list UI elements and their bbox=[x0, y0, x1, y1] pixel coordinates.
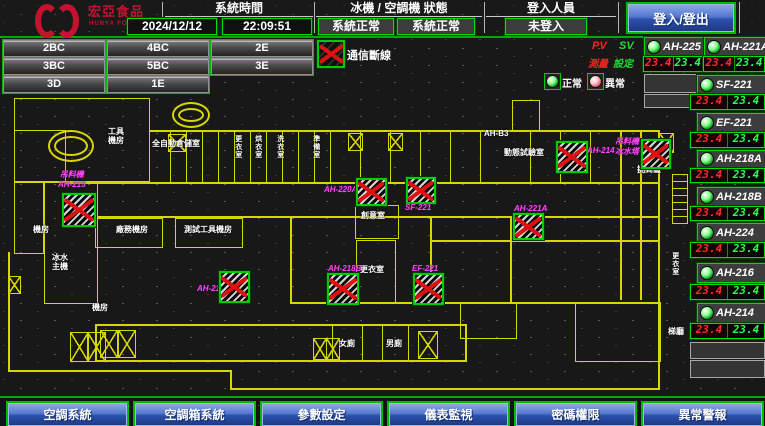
offline-unit-ah-214-plan[interactable] bbox=[556, 141, 588, 173]
stair-x-box bbox=[348, 133, 363, 151]
sv-value: 23.4 bbox=[728, 169, 764, 182]
wall-segment bbox=[330, 132, 331, 182]
unit-name: AH-225 bbox=[663, 41, 701, 53]
floor-button-3d[interactable]: 3D bbox=[3, 76, 105, 93]
bottom-nav-bar: 空調系統 空調箱系統 參數設定 儀表監視 密碼權限 異常警報 bbox=[0, 396, 765, 426]
normal-legend-lamp bbox=[544, 73, 561, 90]
unit-name: AH-218A bbox=[716, 153, 762, 165]
wall-segment bbox=[465, 324, 467, 362]
comm-fail-legend-label: 通信斷線 bbox=[347, 47, 391, 63]
stair-x-box bbox=[118, 330, 136, 358]
room-label: 工具 機房 bbox=[108, 128, 124, 146]
pv-value: 23.4 bbox=[691, 207, 728, 220]
wall-segment bbox=[512, 100, 540, 132]
empty-panel bbox=[690, 342, 765, 359]
room-label: 更衣室 bbox=[234, 135, 242, 159]
wall-segment bbox=[460, 302, 517, 339]
unit-values-ah-218a: 23.423.4 bbox=[690, 168, 765, 183]
room-label: 創意室 bbox=[361, 212, 385, 221]
wall-segment bbox=[230, 388, 660, 390]
room-label: 機房 bbox=[33, 226, 49, 235]
stair-x-box bbox=[326, 338, 340, 360]
sv-header: SV bbox=[619, 40, 634, 52]
unit-values-sf-221: 23.423.4 bbox=[690, 94, 765, 110]
stair-x-box bbox=[8, 276, 21, 294]
unit-name: AH-214 bbox=[716, 307, 754, 319]
sv-value: 23.4 bbox=[728, 95, 764, 109]
offline-unit-ah-215[interactable] bbox=[62, 193, 96, 227]
room-label: 更衣室 bbox=[360, 266, 384, 275]
unit-name: AH-218B bbox=[716, 191, 762, 203]
nav-button-alarm[interactable]: 異常警報 bbox=[643, 403, 762, 426]
offline-unit-ah-218b-plan[interactable] bbox=[327, 273, 359, 305]
pv-value: 23.4 bbox=[704, 57, 735, 71]
offline-unit-label: 冰水塔 bbox=[615, 147, 639, 156]
offline-unit-ah-218[interactable] bbox=[219, 271, 250, 303]
system-time-label: 系統時間 bbox=[165, 1, 313, 17]
wall-segment bbox=[575, 302, 661, 362]
unit-values-ah-214: 23.423.4 bbox=[690, 323, 765, 339]
normal-legend-label: 正常 bbox=[562, 75, 582, 90]
unit-name: EF-221 bbox=[716, 117, 752, 129]
sv-value: 23.4 bbox=[728, 133, 764, 147]
room-label: 冰水 主機 bbox=[52, 254, 68, 272]
offline-unit-ef-221-plan[interactable] bbox=[413, 273, 444, 305]
room-label: 烘衣室 bbox=[254, 135, 262, 159]
room-label: 女廁 bbox=[339, 340, 355, 349]
unit-name: SF-221 bbox=[716, 79, 752, 91]
offline-unit-label: AH-214 bbox=[587, 146, 615, 156]
room-label: 準備室 bbox=[312, 135, 320, 159]
wall-segment bbox=[480, 132, 481, 182]
machine-status-label: 冰機 / 空調機 狀態 bbox=[316, 1, 482, 17]
unit-panel-ah-214[interactable]: AH-214 bbox=[697, 303, 765, 323]
unit-values-ef-221: 23.423.4 bbox=[690, 132, 765, 148]
nav-button-password-authority[interactable]: 密碼權限 bbox=[516, 403, 635, 426]
stair-x-box bbox=[418, 331, 438, 359]
floor-button-2bc[interactable]: 2BC bbox=[3, 40, 105, 57]
floor-button-2e[interactable]: 2E bbox=[211, 40, 313, 57]
offline-unit-ah-221a-plan[interactable] bbox=[513, 213, 544, 240]
pv-value: 23.4 bbox=[691, 243, 728, 257]
room-label: 梯廳 bbox=[668, 328, 684, 337]
nav-button-ac-system[interactable]: 空調系統 bbox=[8, 403, 127, 426]
login-logout-button[interactable]: 登入/登出 bbox=[628, 4, 734, 32]
system-date-value: 2024/12/12 bbox=[127, 18, 217, 35]
sv-value: 23.4 bbox=[735, 57, 765, 71]
floor-button-1e[interactable]: 1E bbox=[107, 76, 209, 93]
offline-unit-hoist[interactable] bbox=[641, 139, 671, 169]
pv-value: 23.4 bbox=[691, 133, 728, 147]
login-status-value: 未登入 bbox=[505, 18, 587, 35]
stair-x-box bbox=[87, 332, 106, 362]
brand-logo-icon bbox=[55, 4, 79, 38]
unit-values-ah-224: 23.423.4 bbox=[690, 242, 765, 258]
offline-unit-label: SF-221 bbox=[405, 203, 431, 213]
unit-panel-sf-221[interactable]: SF-221 bbox=[697, 75, 765, 94]
abnormal-legend-label: 異常 bbox=[605, 75, 625, 90]
offline-unit-label: AH-220A bbox=[324, 185, 357, 195]
wall-segment bbox=[95, 360, 467, 362]
pv-value: 23.4 bbox=[644, 57, 674, 71]
wall-segment bbox=[362, 326, 363, 360]
sv-value: 23.4 bbox=[728, 207, 764, 220]
sv-value: 23.4 bbox=[674, 57, 703, 71]
hmi-screen: 宏亞食品 HUNYA FOODS 系統時間 2024/12/12 22:09:5… bbox=[0, 0, 765, 426]
unit-panel-ah-225[interactable]: AH-225 bbox=[644, 37, 704, 56]
ahu-status-value: 系統正常 bbox=[397, 18, 475, 35]
stair-x-box bbox=[313, 338, 327, 360]
brand-name: 宏亞食品 bbox=[88, 5, 158, 19]
unit-values-ah-221a: 23.423.4 bbox=[703, 56, 765, 72]
wall-segment bbox=[266, 132, 267, 182]
wall-segment bbox=[150, 130, 660, 132]
offline-unit-label: AH-215 bbox=[58, 180, 86, 189]
pv-value: 23.4 bbox=[691, 169, 728, 182]
room-label: 男廁 bbox=[386, 340, 402, 349]
unit-panel-ah-224[interactable]: AH-224 bbox=[697, 223, 765, 242]
login-user-label: 登入人員 bbox=[486, 1, 616, 17]
pv-header: PV bbox=[592, 40, 607, 52]
floor-button-5bc[interactable]: 5BC bbox=[107, 58, 209, 75]
comm-fail-legend-icon bbox=[317, 40, 345, 68]
empty-panel bbox=[644, 74, 701, 93]
wall-segment bbox=[620, 132, 622, 300]
header-divider bbox=[484, 2, 485, 33]
nav-button-meter-monitor[interactable]: 儀表監視 bbox=[389, 403, 508, 426]
room-label: 全自動倉儲室 bbox=[152, 140, 204, 149]
nav-button-ahu-system[interactable]: 空調箱系統 bbox=[135, 403, 254, 426]
room-label: 測試工具機房 bbox=[184, 226, 232, 235]
room-label: 洗衣室 bbox=[276, 135, 284, 159]
unit-panel-ef-221[interactable]: EF-221 bbox=[697, 113, 765, 132]
stair-x-box bbox=[388, 133, 403, 151]
system-time-value: 22:09:51 bbox=[222, 18, 312, 35]
unit-name: AH-224 bbox=[716, 227, 754, 239]
unit-panel-ah-216[interactable]: AH-216 bbox=[697, 263, 765, 283]
sv-name-header: 設定 bbox=[613, 55, 633, 70]
header-bar: 宏亞食品 HUNYA FOODS 系統時間 2024/12/12 22:09:5… bbox=[0, 0, 765, 38]
pv-value: 23.4 bbox=[691, 95, 728, 109]
chiller-status-value: 系統正常 bbox=[318, 18, 394, 35]
sv-value: 23.4 bbox=[728, 243, 764, 257]
unit-name: AH-221A bbox=[723, 41, 765, 53]
wall-segment bbox=[510, 216, 512, 302]
sv-value: 23.4 bbox=[728, 285, 764, 299]
floor-button-3bc[interactable]: 3BC bbox=[3, 58, 105, 75]
room-label: 更衣室 bbox=[671, 252, 679, 276]
unit-values-ah-218b: 23.423.4 bbox=[690, 206, 765, 221]
wall-segment bbox=[250, 132, 251, 182]
wall-segment bbox=[420, 132, 421, 182]
wall-segment bbox=[218, 132, 219, 182]
unit-values-ah-216: 23.423.4 bbox=[690, 284, 765, 300]
unit-panel-ah-218b[interactable]: AH-218B bbox=[697, 187, 765, 206]
wall-segment bbox=[8, 252, 10, 372]
room-label: 機房 bbox=[92, 304, 108, 313]
offline-unit-label: 吊料機 bbox=[60, 170, 84, 179]
wall-segment bbox=[298, 132, 299, 182]
pv-value: 23.4 bbox=[691, 285, 728, 299]
offline-unit-label: 吊料機 bbox=[615, 137, 639, 146]
sv-value: 23.4 bbox=[728, 324, 764, 338]
pv-value: 23.4 bbox=[691, 324, 728, 338]
abnormal-legend-lamp bbox=[587, 73, 604, 90]
room-label: 廠務機房 bbox=[116, 226, 148, 235]
wall-segment bbox=[430, 240, 660, 242]
header-divider bbox=[314, 2, 315, 33]
room-label: 動態試驗室 bbox=[504, 149, 544, 158]
header-divider bbox=[618, 2, 619, 33]
wall-segment bbox=[382, 326, 383, 360]
spiral-stair-icon bbox=[48, 130, 94, 162]
ladder-icon bbox=[672, 174, 688, 224]
wall-segment bbox=[450, 132, 451, 182]
wall-segment bbox=[14, 182, 44, 254]
wall-segment bbox=[95, 324, 467, 326]
pv-name-header: 測量 bbox=[588, 55, 608, 70]
wall-segment bbox=[8, 370, 232, 372]
wall-segment bbox=[290, 216, 292, 304]
offline-unit-ah-220a[interactable] bbox=[356, 178, 387, 206]
unit-panel-ah-221a[interactable]: AH-221A bbox=[704, 37, 765, 56]
unit-name: AH-216 bbox=[716, 267, 754, 279]
wall-segment bbox=[230, 370, 232, 390]
unit-panel-ah-218a[interactable]: AH-218A bbox=[697, 150, 765, 168]
floor-button-4bc[interactable]: 4BC bbox=[107, 40, 209, 57]
wall-segment bbox=[590, 132, 591, 182]
nav-button-parameter-settings[interactable]: 參數設定 bbox=[262, 403, 381, 426]
room-label: AH-B3 bbox=[484, 130, 508, 139]
floor-button-3e[interactable]: 3E bbox=[211, 58, 313, 75]
wall-segment bbox=[408, 326, 409, 360]
spiral-stair-icon bbox=[172, 102, 210, 128]
unit-values-ah-225: 23.423.4 bbox=[643, 56, 703, 72]
offline-unit-sf-221[interactable] bbox=[406, 177, 436, 204]
empty-panel bbox=[690, 360, 765, 378]
header-divider bbox=[739, 2, 740, 33]
